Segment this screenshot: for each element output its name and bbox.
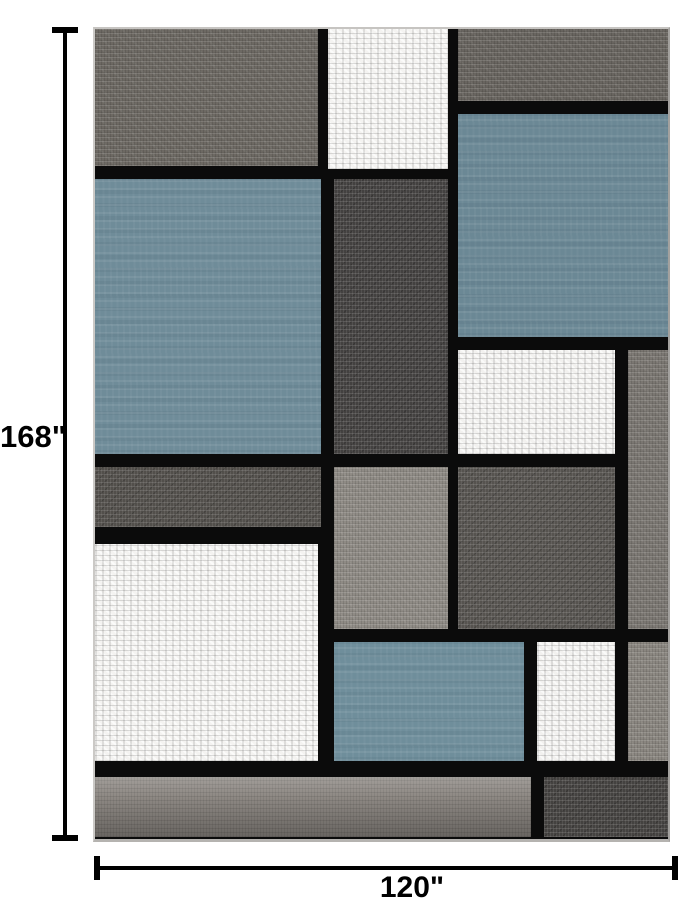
top-left-gray-block [95,29,318,166]
right-edge-gray-column-lower [628,642,668,761]
width-dimension-left-cap [94,856,100,880]
height-dimension-bottom-cap [52,835,78,841]
bottom-small-white-block [537,642,615,761]
left-gray-strip [95,467,321,527]
product-dimension-image: 168" 120" [0,0,679,902]
center-dark-gray-column [334,179,448,454]
bottom-band-right-dark [544,777,668,837]
width-dimension-right-cap [672,856,678,880]
height-dimension-top-cap [52,27,78,33]
rug [93,27,670,842]
right-dark-gray-block [458,467,615,629]
top-right-gray-block [458,29,668,101]
top-center-white-block [328,29,448,169]
bottom-blue-block [334,642,524,761]
bottom-band-left-gray [95,777,531,837]
width-label: 120" [332,873,492,902]
width-dimension-line [96,866,676,870]
center-light-gray-block [334,467,448,629]
left-blue-block [95,179,321,454]
right-blue-block [458,114,668,337]
left-white-block [95,544,318,761]
right-white-block [458,350,615,454]
right-edge-gray-column-upper [628,350,668,629]
height-label: 168" [0,421,57,452]
